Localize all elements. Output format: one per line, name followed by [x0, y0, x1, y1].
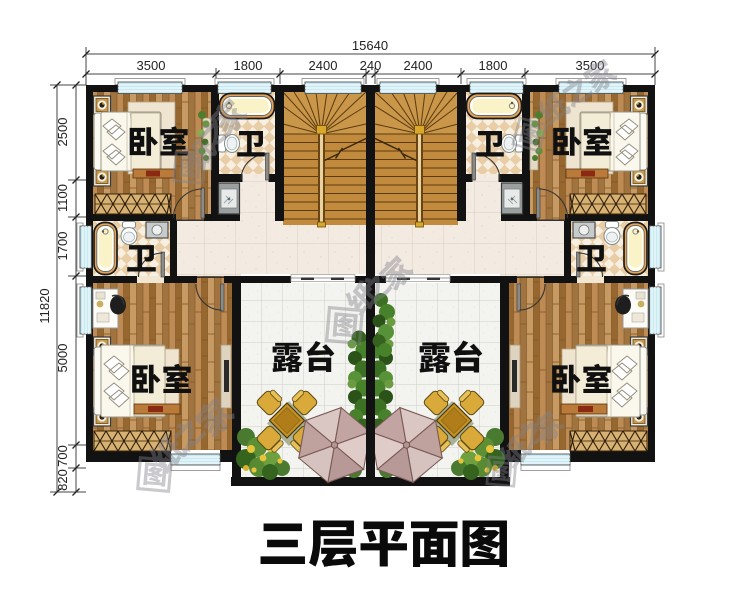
svg-text:5000: 5000 — [55, 344, 70, 373]
svg-text:1700: 1700 — [55, 232, 70, 261]
svg-text:2400: 2400 — [404, 58, 433, 73]
svg-text:700: 700 — [55, 445, 70, 467]
svg-text:1800: 1800 — [479, 58, 508, 73]
svg-text:2500: 2500 — [55, 118, 70, 147]
svg-text:1100: 1100 — [55, 184, 70, 212]
svg-text:820: 820 — [55, 469, 70, 491]
svg-text:11820: 11820 — [37, 288, 52, 323]
svg-text:1800: 1800 — [234, 58, 263, 73]
svg-text:240: 240 — [360, 58, 382, 73]
svg-text:2400: 2400 — [309, 58, 338, 73]
svg-text:3500: 3500 — [137, 58, 166, 73]
svg-text:15640: 15640 — [352, 38, 388, 53]
